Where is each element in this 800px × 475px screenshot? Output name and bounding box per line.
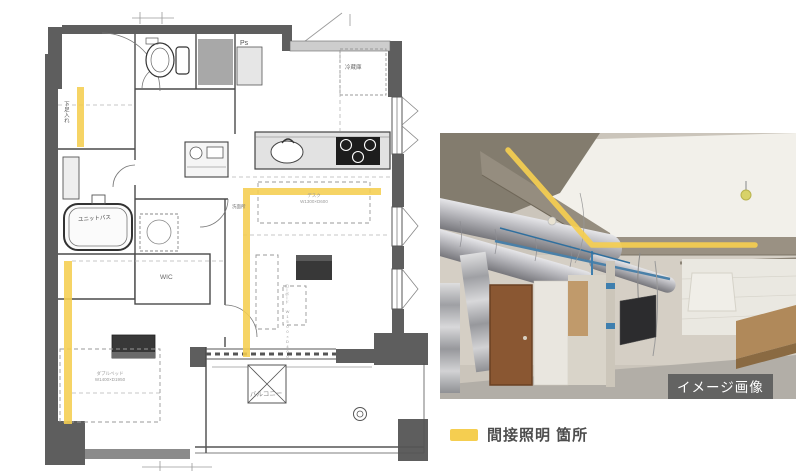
wood-door (490, 285, 532, 385)
photo-caption: イメージ画像 (668, 374, 773, 399)
balcony-elements (195, 363, 424, 453)
floor-plan: 下足入れ Ps 冷蔵庫 ユニットバス 洗面所 WIC デスク W1300×D60… (42, 5, 434, 473)
label-wic: WIC (160, 274, 173, 282)
label-tv-board: ローボード W1500×D400 (285, 284, 290, 359)
washing-machine-icon (140, 214, 178, 251)
floor-plan-drawing (42, 5, 434, 473)
refrigerator-area (340, 49, 386, 95)
legend-swatch-rect (450, 429, 478, 441)
ceiling-light-icon (548, 217, 556, 225)
stove-icon (336, 137, 380, 165)
label-washroom: 洗面所 (232, 204, 246, 210)
bedroom-tv-board (112, 335, 155, 358)
white-panel (534, 281, 568, 385)
vestibule-block (198, 39, 233, 85)
pipe-space-box (237, 47, 262, 85)
double-bed-area (60, 349, 160, 422)
label-balcony: バルコニー (250, 390, 283, 399)
bath-vanity (63, 157, 79, 199)
kitchen-window-wall (290, 41, 390, 51)
door-knob-icon (523, 336, 527, 340)
center-pole (606, 261, 615, 387)
range-hood-icon (688, 273, 736, 311)
label-double-bed: ダブルベッド W1400×D1950 (60, 371, 160, 382)
indirect-light-bedroom (64, 261, 72, 424)
washbasin-icon (185, 142, 228, 177)
label-refrigerator: 冷蔵庫 (345, 65, 362, 72)
construction-photo-art (440, 133, 796, 399)
legend-swatch (450, 429, 478, 441)
balcony-sliding-door (206, 349, 336, 359)
construction-photo: イメージ画像 (440, 133, 796, 399)
toilet-icon (146, 38, 189, 77)
foil-insulation-left (440, 283, 460, 393)
label-shoe-storage: 下足入れ (62, 101, 69, 123)
label-desk: デスク W1300×D600 (258, 193, 370, 204)
indirect-light-living-vertical (243, 188, 250, 357)
living-tv-icon (296, 255, 332, 280)
legend-label: 間接照明 箇所 (487, 424, 588, 445)
bedroom-bottom-wall (85, 449, 190, 459)
indirect-light-entrance (77, 87, 84, 147)
drain-icon (354, 408, 367, 421)
dark-panel (620, 295, 656, 345)
window-swing-icon (402, 97, 418, 309)
label-pipe-space: Ps (240, 40, 248, 49)
legend: 間接照明 箇所 (450, 424, 588, 445)
cardboard-panel (568, 281, 588, 336)
